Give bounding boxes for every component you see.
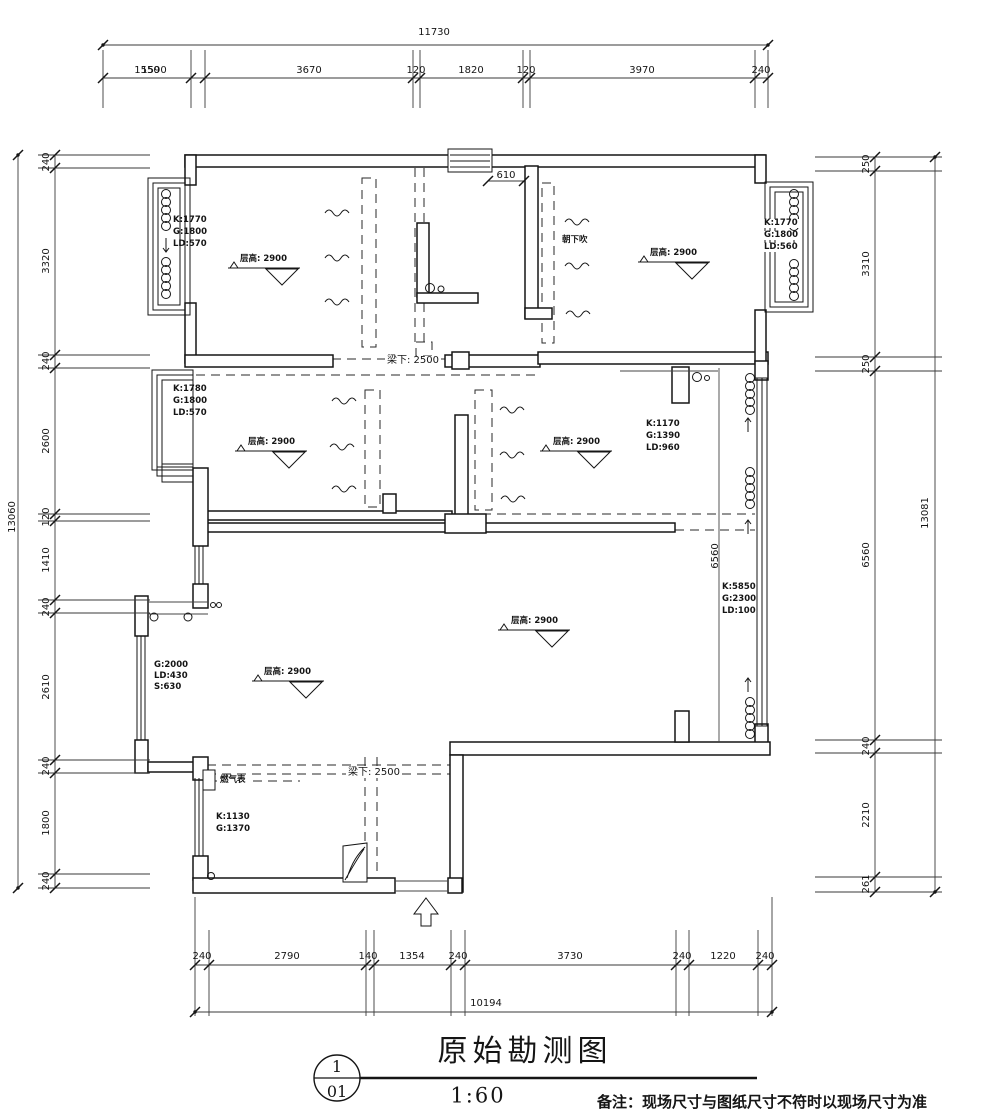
dim-right-seg: 3310 [862, 251, 872, 276]
dim-right-seg: 240 [862, 736, 872, 755]
drawing-title: 原始勘测图 [438, 1037, 613, 1067]
room-topright-k: K:1770 [762, 219, 800, 228]
room-living-level: 层高: 2900 [511, 617, 558, 626]
room-lowerleft-ld: LD:430 [154, 672, 188, 681]
room-living-ld: LD:100 [722, 607, 756, 616]
dim-top-seg: 240 [751, 66, 770, 76]
room-kitchen-g: G:1370 [216, 825, 250, 834]
room-kitchen-k: K:1130 [216, 813, 250, 822]
drawing-scale: 1:60 [450, 1086, 505, 1107]
dim-right-seg: 250 [862, 354, 872, 373]
room-topright-note: 朝下吹 [562, 236, 588, 245]
room-topleft-ld: LD:570 [173, 240, 207, 249]
dim-bottom-seg: 140 [358, 952, 377, 962]
beam-label-top: 梁下: 2500 [385, 356, 441, 366]
room-midright-k: K:1170 [646, 420, 680, 429]
dim-right-overall: 13081 [921, 497, 931, 529]
dim-left-seg: 240 [42, 597, 52, 616]
room-topright-level: 层高: 2900 [650, 249, 697, 258]
room-topleft-level: 层高: 2900 [240, 255, 287, 264]
dim-top-overall: 11730 [418, 28, 450, 38]
room-lowerleft-level: 层高: 2900 [264, 668, 311, 677]
dim-top-seg-overlap: 1590 [141, 66, 166, 76]
level-markers [228, 256, 710, 698]
room-midright-ld: LD:960 [646, 444, 680, 453]
dim-top-seg: 3970 [629, 66, 654, 76]
room-living-k: K:5850 [722, 583, 756, 592]
room-midleft-level: 层高: 2900 [248, 438, 295, 447]
dim-right-seg: 250 [862, 154, 872, 173]
room-living-g: G:2300 [722, 595, 756, 604]
dim-door-610: 610 [496, 171, 515, 181]
room-topright-ld: LD:560 [762, 243, 800, 252]
room-topright-g: G:1800 [762, 231, 800, 240]
room-midright-g: G:1390 [646, 432, 680, 441]
dim-bottom-seg: 1354 [399, 952, 424, 962]
dim-top-seg: 120 [406, 66, 425, 76]
dim-left-seg: 1410 [42, 547, 52, 572]
dim-right-seg: 261 [862, 874, 872, 893]
beam-label-bottom: 梁下: 2500 [346, 768, 402, 778]
dim-bottom-seg: 2790 [274, 952, 299, 962]
dim-left-seg: 2610 [42, 674, 52, 699]
dim-top-seg: 1820 [458, 66, 483, 76]
floorplan-drawing [0, 0, 992, 1120]
sheet-index: 1 [332, 1059, 342, 1075]
dim-bottom-overall: 10194 [470, 999, 502, 1009]
room-midright-level: 层高: 2900 [553, 438, 600, 447]
room-topleft-g: G:1800 [173, 228, 207, 237]
window-arrows [163, 236, 797, 692]
dim-left-seg: 1800 [42, 810, 52, 835]
floorplan-canvas: 11730 1550 1590 3670 120 1820 120 3970 2… [0, 0, 992, 1120]
dim-left-seg: 240 [42, 756, 52, 775]
dim-bottom-seg: 3730 [557, 952, 582, 962]
dim-inner-6560: 6560 [711, 543, 721, 568]
room-midleft-g: G:1800 [173, 397, 207, 406]
dim-bottom-seg: 240 [192, 952, 211, 962]
dim-left-seg: 240 [42, 871, 52, 890]
dim-left-seg: 3320 [42, 248, 52, 273]
dim-left-overall: 13060 [8, 501, 18, 533]
dim-bottom-seg: 240 [448, 952, 467, 962]
room-lowerleft-g: G:2000 [154, 661, 188, 670]
dim-bottom-seg: 1220 [710, 952, 735, 962]
room-midleft-k: K:1780 [173, 385, 207, 394]
dim-bottom-seg: 240 [672, 952, 691, 962]
room-topleft-k: K:1770 [173, 216, 207, 225]
dim-right-seg: 2210 [862, 802, 872, 827]
coil-symbols [162, 190, 799, 739]
gas-meter-label: 燃气表 [218, 776, 248, 785]
room-midleft-ld: LD:570 [173, 409, 207, 418]
dim-right-seg: 6560 [862, 542, 872, 567]
dim-top-seg: 120 [516, 66, 535, 76]
dim-left-seg: 240 [42, 351, 52, 370]
dim-left-seg: 240 [42, 152, 52, 171]
dim-left-seg: 2600 [42, 428, 52, 453]
drawing-note: 备注：现场尺寸与图纸尺寸不符时以现场尺寸为准 [597, 1095, 927, 1110]
sheet-number: 01 [327, 1084, 347, 1100]
dim-bottom-seg: 240 [755, 952, 774, 962]
dim-top-seg: 3670 [296, 66, 321, 76]
dim-left-seg: 120 [42, 507, 52, 526]
room-lowerleft-s: S:630 [154, 683, 181, 692]
